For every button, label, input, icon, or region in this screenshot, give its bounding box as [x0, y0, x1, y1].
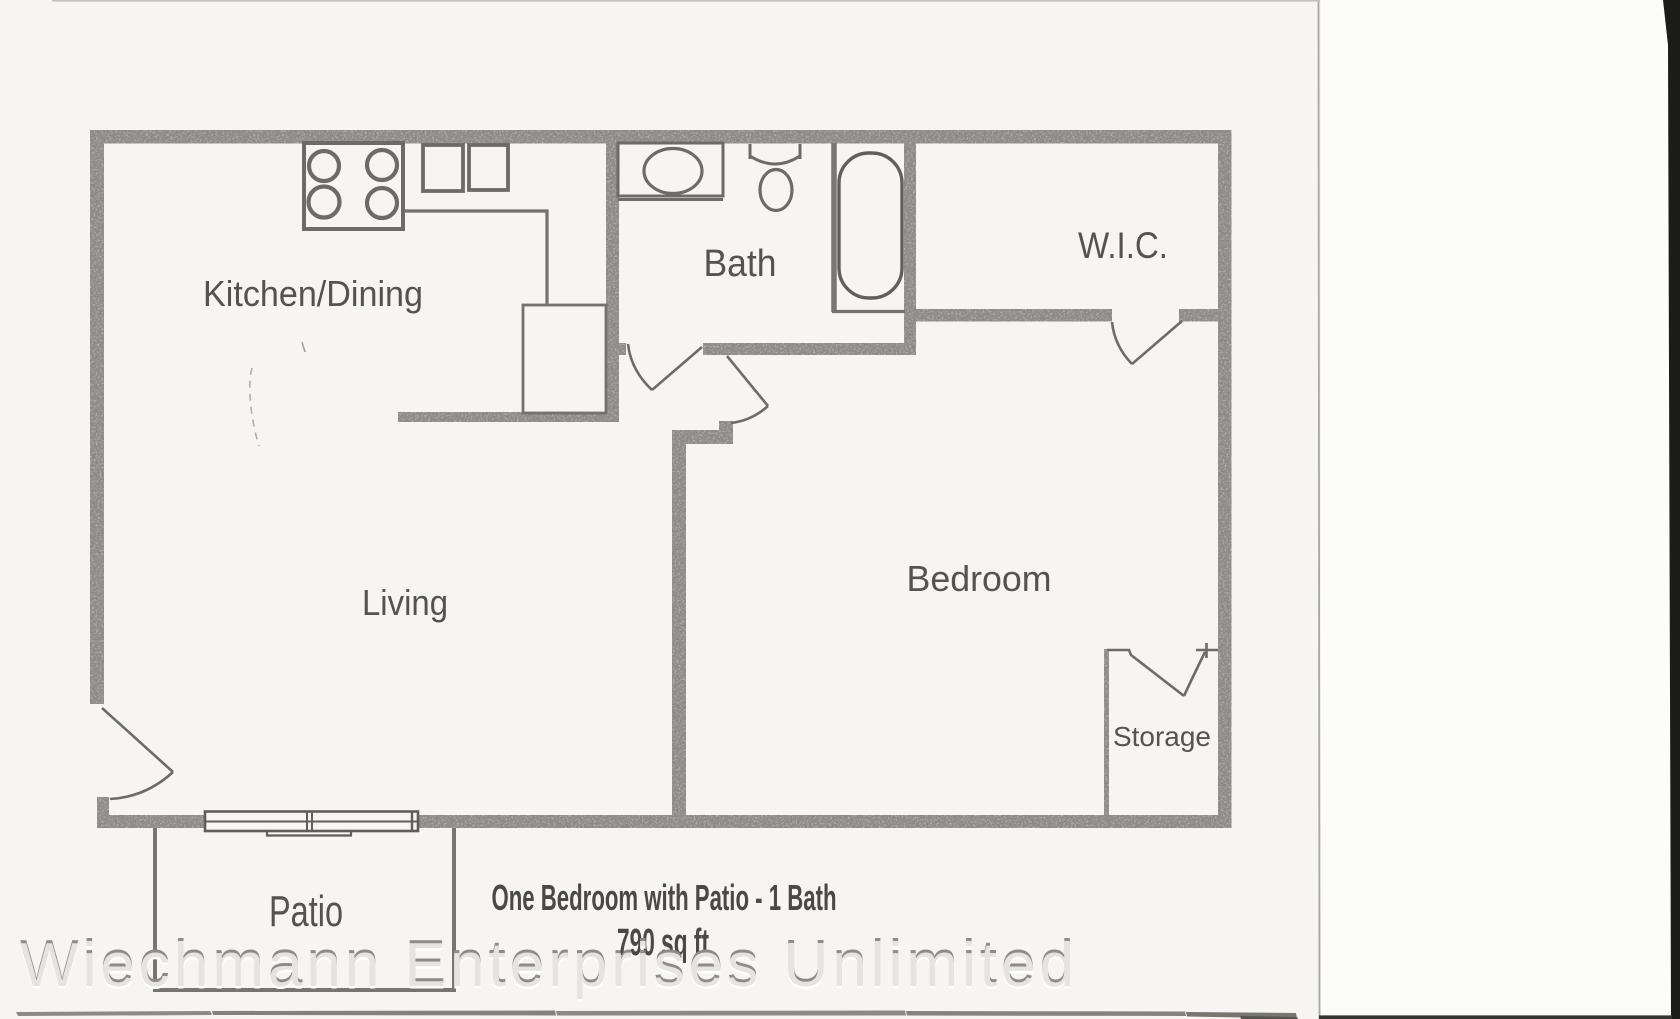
svg-text:Living: Living: [362, 582, 448, 623]
svg-text:One Bedroom with Patio - 1 Bat: One Bedroom with Patio - 1 Bath: [492, 877, 837, 918]
svg-text:Bath: Bath: [704, 243, 777, 285]
svg-text:W.I.C.: W.I.C.: [1078, 225, 1168, 266]
svg-text:Kitchen/Dining: Kitchen/Dining: [203, 273, 423, 314]
svg-text:Storage: Storage: [1113, 721, 1211, 752]
svg-text:Bedroom: Bedroom: [907, 558, 1052, 599]
